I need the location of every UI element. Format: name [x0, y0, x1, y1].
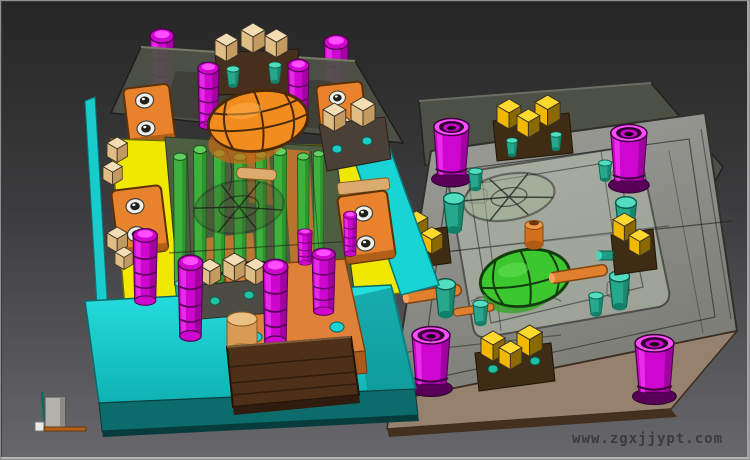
- support-block-stack[interactable]: [227, 337, 360, 415]
- left-mold-assembly[interactable]: [85, 23, 439, 437]
- axis-origin-cube: [35, 422, 44, 431]
- runner-bar: [236, 167, 277, 181]
- axis-box-shade: [60, 397, 65, 427]
- mold-3d-scene[interactable]: [1, 1, 750, 460]
- guide-bushing-bottom-right[interactable]: [633, 335, 677, 405]
- cad-viewport[interactable]: www.zgxjjypt.com: [0, 0, 750, 460]
- guide-bushing-top-left[interactable]: [431, 119, 471, 188]
- left-edge-plate: [85, 97, 107, 305]
- guide-bushing-top-right[interactable]: [608, 125, 649, 194]
- sprue-bushing[interactable]: [525, 221, 543, 250]
- screw-hole: [330, 322, 344, 332]
- watermark-text: www.zgxjjypt.com: [572, 431, 723, 447]
- axis-x-orange: [44, 427, 86, 431]
- ucs-axis-indicator: [35, 392, 86, 431]
- right-mold-assembly[interactable]: [387, 83, 737, 437]
- sprue-locating-block[interactable]: [215, 23, 299, 95]
